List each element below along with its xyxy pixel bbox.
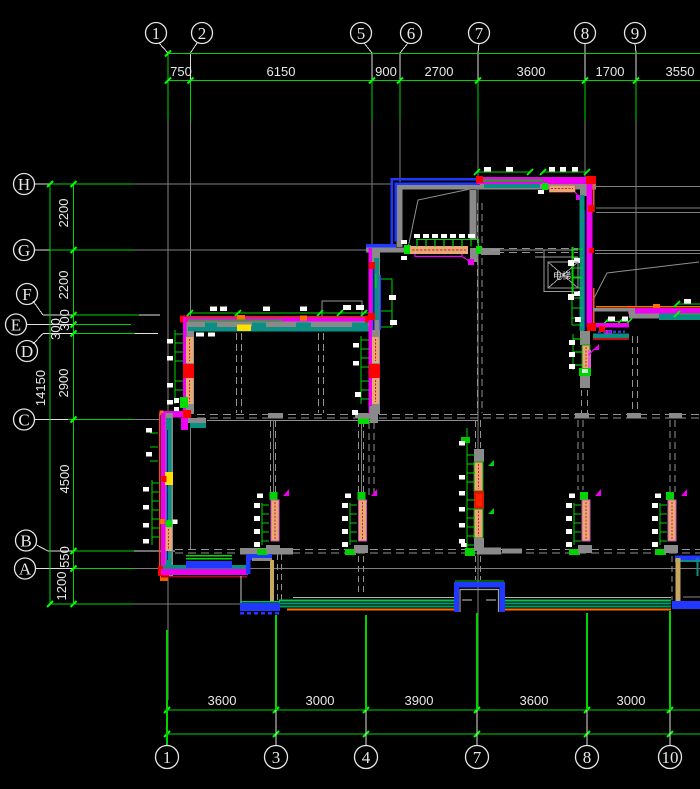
svg-text:3600: 3600 xyxy=(520,693,549,708)
svg-text:300: 300 xyxy=(48,318,63,340)
svg-text:3550: 3550 xyxy=(666,64,695,79)
svg-text:A: A xyxy=(19,560,32,579)
svg-text:750: 750 xyxy=(170,64,192,79)
svg-text:2200: 2200 xyxy=(56,271,71,300)
svg-text:C: C xyxy=(18,411,29,430)
svg-text:1: 1 xyxy=(152,24,161,43)
svg-text:E: E xyxy=(11,316,21,335)
svg-text:3: 3 xyxy=(272,748,281,767)
svg-text:8: 8 xyxy=(581,24,590,43)
svg-text:7: 7 xyxy=(475,24,484,43)
svg-text:1200: 1200 xyxy=(54,572,69,601)
svg-text:2: 2 xyxy=(198,24,207,43)
svg-text:1: 1 xyxy=(163,748,172,767)
svg-text:550: 550 xyxy=(57,546,72,568)
svg-text:6: 6 xyxy=(407,24,416,43)
svg-text:3600: 3600 xyxy=(208,693,237,708)
svg-text:H: H xyxy=(18,175,30,194)
svg-text:2200: 2200 xyxy=(56,199,71,228)
svg-text:900: 900 xyxy=(375,64,397,79)
svg-text:2900: 2900 xyxy=(56,369,71,398)
svg-text:3900: 3900 xyxy=(405,693,434,708)
svg-text:14150: 14150 xyxy=(33,370,48,406)
svg-text:G: G xyxy=(18,241,30,260)
svg-text:8: 8 xyxy=(583,748,592,767)
svg-text:3000: 3000 xyxy=(306,693,335,708)
svg-text:5: 5 xyxy=(357,24,366,43)
svg-text:7: 7 xyxy=(473,748,482,767)
svg-text:6150: 6150 xyxy=(267,64,296,79)
svg-text:D: D xyxy=(21,342,33,361)
svg-text:10: 10 xyxy=(662,748,679,767)
svg-text:4500: 4500 xyxy=(57,465,72,494)
svg-text:电梯: 电梯 xyxy=(553,270,571,281)
svg-text:3000: 3000 xyxy=(617,693,646,708)
svg-text:2700: 2700 xyxy=(425,64,454,79)
svg-text:3600: 3600 xyxy=(517,64,546,79)
svg-text:4: 4 xyxy=(362,748,371,767)
svg-text:9: 9 xyxy=(631,24,640,43)
svg-text:B: B xyxy=(20,532,31,551)
svg-text:F: F xyxy=(22,285,31,304)
svg-text:1700: 1700 xyxy=(596,64,625,79)
